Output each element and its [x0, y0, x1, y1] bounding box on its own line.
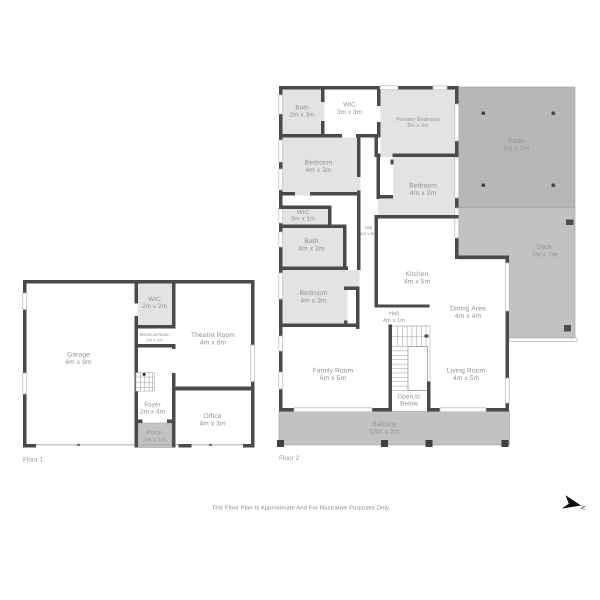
- svg-text:Office: Office: [204, 413, 222, 420]
- svg-text:Living Room: Living Room: [447, 368, 486, 375]
- svg-text:Bedroom: Bedroom: [409, 183, 437, 190]
- svg-text:Open to: Open to: [397, 393, 421, 400]
- svg-text:WIC: WIC: [343, 102, 356, 109]
- svg-text:Theatre Room: Theatre Room: [191, 332, 235, 339]
- svg-text:5m x 4m: 5m x 4m: [407, 123, 429, 129]
- svg-text:Bath: Bath: [304, 238, 318, 245]
- svg-text:4m x 5m: 4m x 5m: [453, 375, 480, 382]
- svg-text:4m x 3m: 4m x 3m: [305, 167, 332, 174]
- svg-text:Bath: Bath: [295, 105, 309, 112]
- svg-text:2m x 1m: 2m x 1m: [146, 337, 163, 342]
- svg-text:7m x 7m: 7m x 7m: [531, 252, 558, 259]
- svg-text:Balcony: Balcony: [372, 421, 397, 428]
- svg-text:Kitchen: Kitchen: [405, 271, 428, 278]
- svg-text:4m x 1m: 4m x 1m: [383, 318, 405, 324]
- svg-text:2m x 4m: 2m x 4m: [140, 408, 165, 415]
- svg-text:Floor 1: Floor 1: [23, 457, 44, 464]
- svg-text:2m x 1m: 2m x 1m: [143, 437, 166, 444]
- svg-text:3m x 3m: 3m x 3m: [337, 109, 362, 116]
- svg-text:WIC: WIC: [148, 296, 161, 303]
- svg-text:4m x 3m: 4m x 3m: [300, 298, 327, 305]
- svg-text:Hall: Hall: [365, 225, 372, 230]
- svg-text:Patio: Patio: [508, 138, 524, 145]
- svg-text:Floor 2: Floor 2: [279, 455, 300, 462]
- svg-text:4m x 3m: 4m x 3m: [199, 421, 226, 428]
- svg-text:4m x 6m: 4m x 6m: [200, 339, 227, 346]
- svg-text:Deck: Deck: [537, 244, 553, 251]
- svg-text:Garage: Garage: [67, 352, 90, 359]
- svg-text:4m x 4m: 4m x 4m: [455, 313, 482, 320]
- svg-text:Electrical Room: Electrical Room: [139, 332, 170, 337]
- svg-text:7m x 7m: 7m x 7m: [503, 146, 530, 153]
- svg-text:This Floor Plan Is Approximate: This Floor Plan Is Approximate And For I…: [212, 505, 391, 512]
- svg-text:3m x 1m: 3m x 1m: [291, 216, 315, 223]
- svg-text:Bedroom: Bedroom: [300, 290, 328, 297]
- svg-text:2m x 3m: 2m x 3m: [290, 112, 315, 119]
- svg-text:Bedroom: Bedroom: [305, 160, 333, 167]
- svg-text:6m x 5m: 6m x 5m: [320, 375, 347, 382]
- svg-text:4m x 3m: 4m x 3m: [410, 190, 437, 197]
- svg-text:Foyer: Foyer: [144, 401, 161, 408]
- svg-text:Family Room: Family Room: [313, 368, 354, 375]
- svg-text:Porch: Porch: [147, 430, 163, 437]
- svg-text:Hall: Hall: [389, 310, 399, 317]
- svg-text:4m x 5m: 4m x 5m: [404, 279, 431, 286]
- svg-text:6m x 9m: 6m x 9m: [65, 359, 92, 366]
- svg-text:Dining Area: Dining Area: [450, 306, 486, 313]
- svg-text:13m x 2m: 13m x 2m: [369, 429, 399, 436]
- svg-text:4m x 2m: 4m x 2m: [298, 246, 325, 253]
- svg-text:Below: Below: [400, 401, 418, 408]
- svg-text:2m x 2m: 2m x 2m: [142, 303, 167, 310]
